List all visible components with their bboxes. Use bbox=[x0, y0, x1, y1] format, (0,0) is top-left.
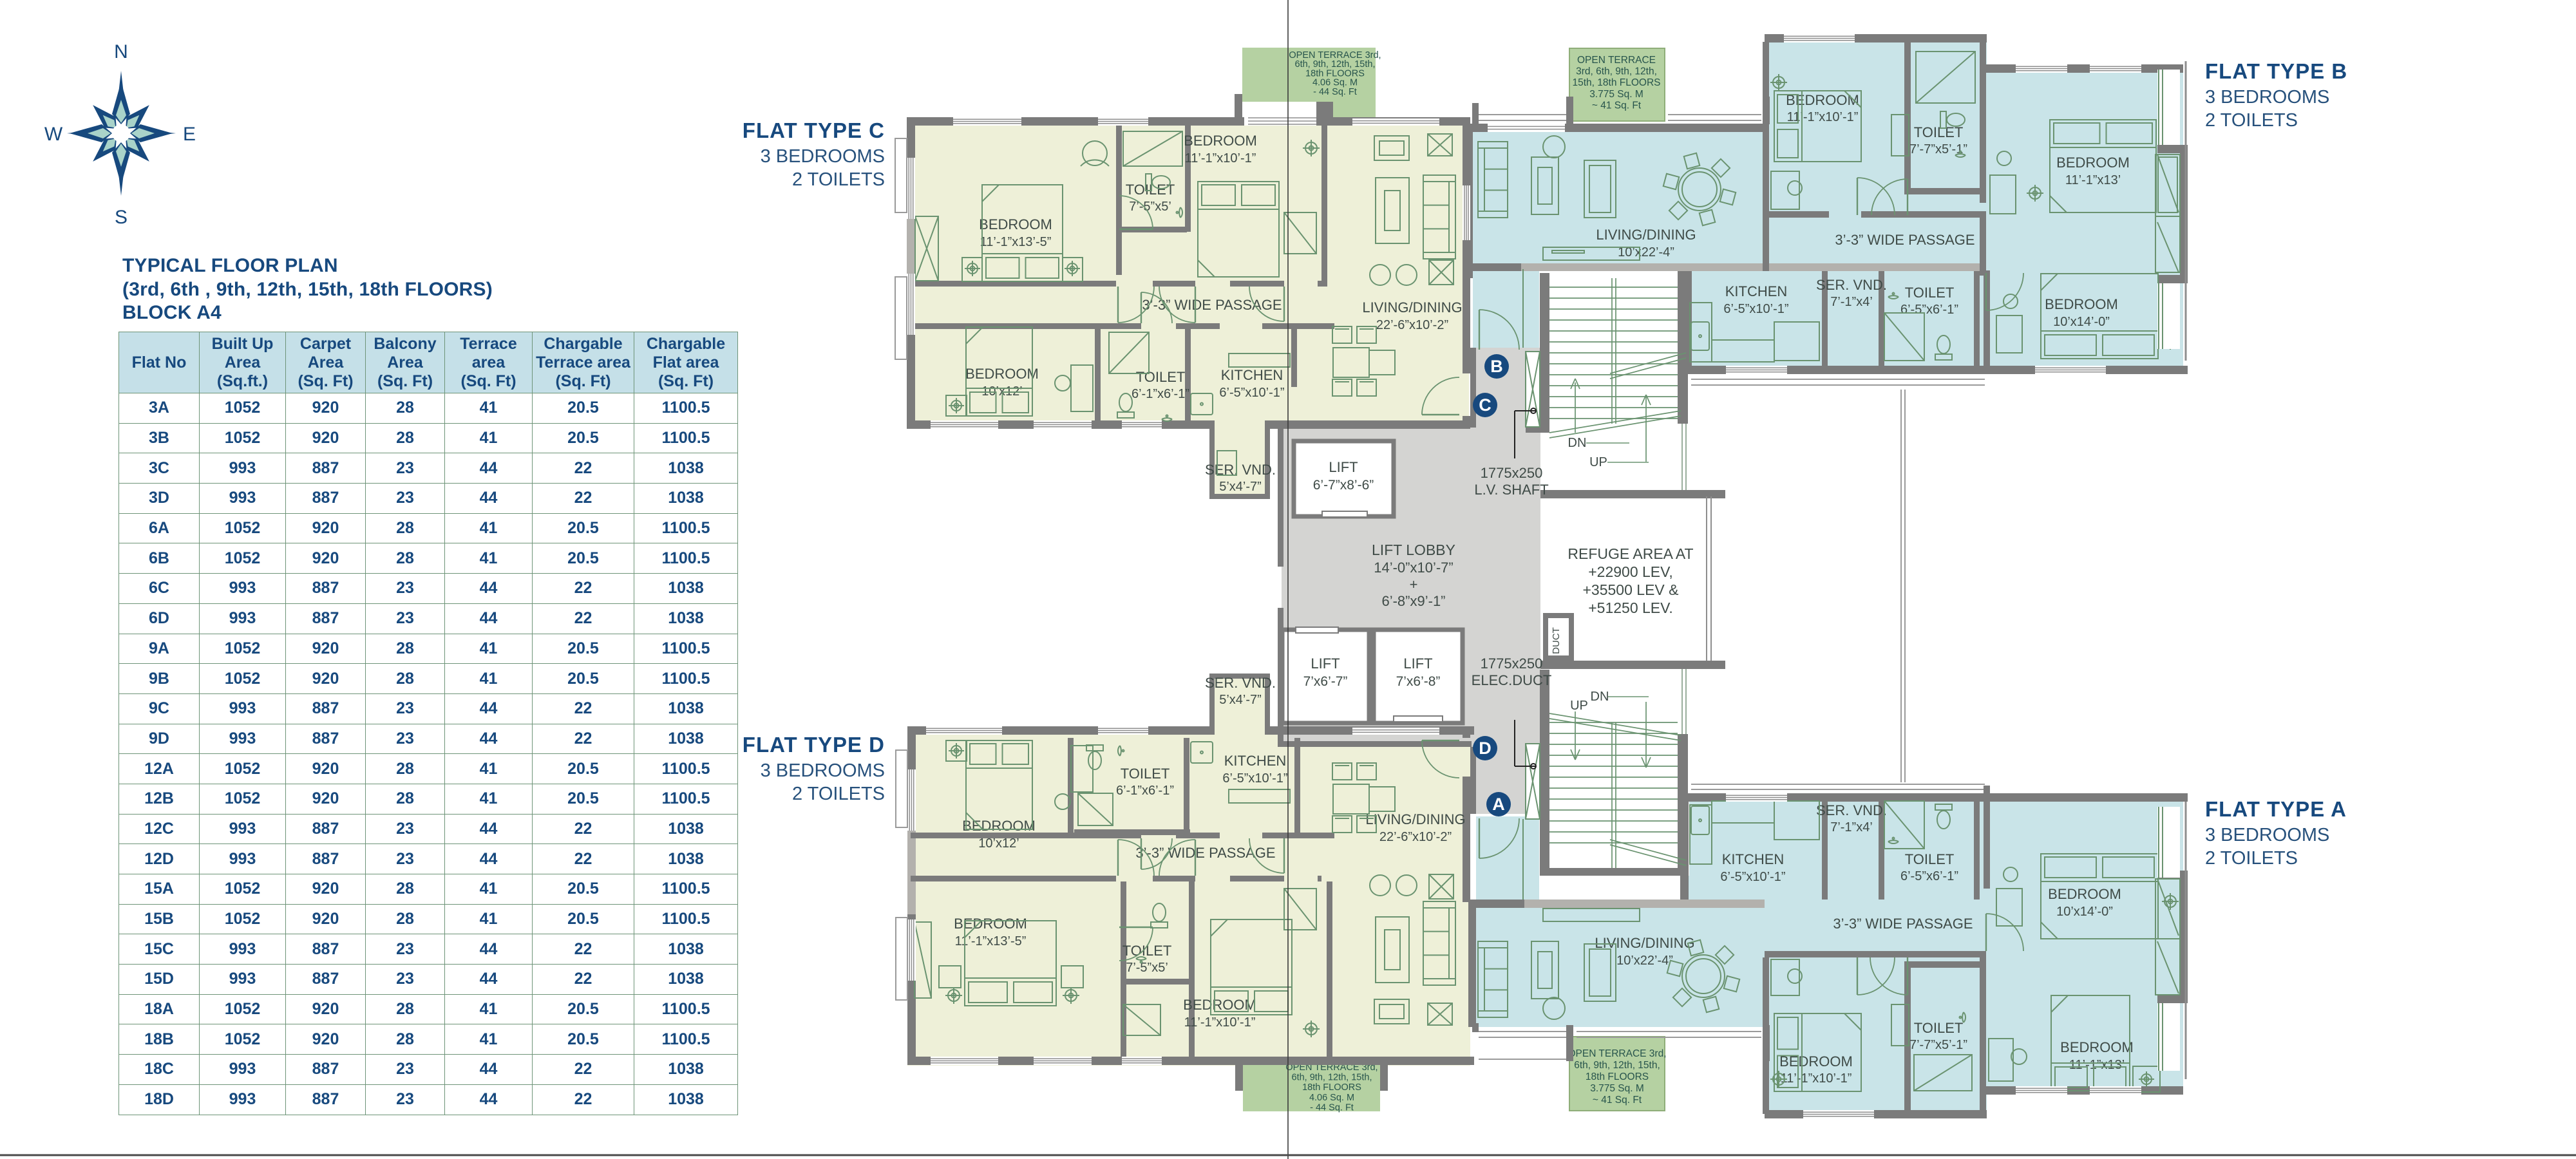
svg-text:3rd, 6th, 9th, 12th,: 3rd, 6th, 9th, 12th, bbox=[1576, 66, 1657, 77]
svg-text:N: N bbox=[114, 41, 128, 62]
svg-text:3’-3” WIDE PASSAGE: 3’-3” WIDE PASSAGE bbox=[1142, 297, 1282, 313]
svg-text:LIVING/DINING: LIVING/DINING bbox=[1596, 227, 1696, 243]
svg-text:TOILET: TOILET bbox=[1121, 766, 1170, 782]
svg-text:BEDROOM: BEDROOM bbox=[2056, 155, 2130, 171]
svg-text:REFUGE AREA AT: REFUGE AREA AT bbox=[1567, 545, 1693, 562]
svg-text:SER. VND.: SER. VND. bbox=[1816, 802, 1887, 818]
svg-text:11’-1”x10’-1”: 11’-1”x10’-1” bbox=[1781, 1071, 1852, 1086]
svg-text:ELEC.DUCT: ELEC.DUCT bbox=[1472, 672, 1552, 688]
svg-text:KITCHEN: KITCHEN bbox=[1725, 283, 1788, 299]
svg-text:6’-5”x10’-1”: 6’-5”x10’-1” bbox=[1222, 771, 1287, 786]
svg-text:DN: DN bbox=[1591, 690, 1609, 704]
svg-text:- 44 Sq. Ft: - 44 Sq. Ft bbox=[1313, 87, 1357, 97]
svg-text:BEDROOM: BEDROOM bbox=[965, 366, 1039, 382]
svg-text:E: E bbox=[183, 124, 196, 145]
svg-text:5’x4’-7”: 5’x4’-7” bbox=[1219, 480, 1262, 494]
svg-text:UP: UP bbox=[1570, 699, 1588, 713]
svg-text:4.06 Sq. M: 4.06 Sq. M bbox=[1309, 1093, 1354, 1103]
svg-text:SER. VND.: SER. VND. bbox=[1205, 675, 1276, 691]
svg-text:18th FLOORS: 18th FLOORS bbox=[1302, 1082, 1361, 1093]
svg-text:2 TOILETS: 2 TOILETS bbox=[2205, 848, 2298, 869]
svg-text:KITCHEN: KITCHEN bbox=[1221, 367, 1283, 383]
svg-text:L.V. SHAFT: L.V. SHAFT bbox=[1474, 482, 1548, 498]
svg-text:5’x4’-7”: 5’x4’-7” bbox=[1219, 693, 1262, 707]
svg-text:10’x22’-4”: 10’x22’-4” bbox=[1616, 954, 1673, 968]
svg-text:A: A bbox=[1492, 795, 1505, 814]
svg-text:SER. VND.: SER. VND. bbox=[1816, 277, 1887, 293]
svg-text:+51250 LEV.: +51250 LEV. bbox=[1588, 599, 1673, 616]
svg-text:6’-5”x6’-1”: 6’-5”x6’-1” bbox=[1900, 303, 1958, 317]
svg-text:TOILET: TOILET bbox=[1914, 1020, 1964, 1036]
svg-text:~ 41 Sq. Ft: ~ 41 Sq. Ft bbox=[1592, 100, 1642, 111]
svg-text:3 BEDROOMS: 3 BEDROOMS bbox=[761, 146, 885, 167]
svg-text:10’x14’-0”: 10’x14’-0” bbox=[2053, 315, 2110, 329]
svg-text:6’-1”x6’-1”: 6’-1”x6’-1” bbox=[1132, 387, 1189, 401]
svg-text:11’-1”x13’: 11’-1”x13’ bbox=[2069, 1058, 2125, 1072]
svg-text:FLAT TYPE D: FLAT TYPE D bbox=[743, 733, 885, 757]
svg-text:3 BEDROOMS: 3 BEDROOMS bbox=[2205, 87, 2329, 108]
svg-text:7’x6’-8”: 7’x6’-8” bbox=[1396, 674, 1441, 689]
svg-text:2 TOILETS: 2 TOILETS bbox=[792, 169, 885, 190]
svg-text:10’x12’: 10’x12’ bbox=[978, 836, 1019, 851]
svg-text:FLAT TYPE A: FLAT TYPE A bbox=[2205, 797, 2347, 821]
svg-text:3’-3” WIDE PASSAGE: 3’-3” WIDE PASSAGE bbox=[1833, 916, 1973, 932]
svg-text:B: B bbox=[1490, 357, 1503, 376]
svg-text:S: S bbox=[115, 207, 128, 228]
svg-text:6’-5”x10’-1”: 6’-5”x10’-1” bbox=[1219, 386, 1284, 400]
svg-text:6’-1”x6’-1”: 6’-1”x6’-1” bbox=[1116, 784, 1174, 798]
svg-text:W: W bbox=[44, 124, 63, 145]
svg-text:DUCT: DUCT bbox=[1551, 627, 1562, 654]
svg-text:3 BEDROOMS: 3 BEDROOMS bbox=[761, 760, 885, 781]
svg-text:- 44 Sq. Ft: - 44 Sq. Ft bbox=[1310, 1102, 1354, 1113]
svg-text:UP: UP bbox=[1589, 455, 1607, 469]
svg-text:11’-1”x10’-1”: 11’-1”x10’-1” bbox=[1184, 1015, 1256, 1030]
svg-text:14’-0”x10’-7”: 14’-0”x10’-7” bbox=[1374, 560, 1454, 576]
svg-text:BEDROOM: BEDROOM bbox=[1184, 133, 1257, 149]
svg-text:6’-5”x6’-1”: 6’-5”x6’-1” bbox=[1900, 869, 1958, 883]
svg-text:6th, 9th, 12th, 15th,: 6th, 9th, 12th, 15th, bbox=[1574, 1060, 1660, 1071]
svg-text:2 TOILETS: 2 TOILETS bbox=[2205, 110, 2298, 131]
svg-text:FLAT TYPE C: FLAT TYPE C bbox=[743, 118, 885, 142]
svg-text:+: + bbox=[1410, 576, 1418, 592]
svg-text:TOILET: TOILET bbox=[1122, 943, 1172, 959]
svg-text:LIFT: LIFT bbox=[1311, 655, 1340, 672]
svg-text:22’-6”x10’-2”: 22’-6”x10’-2” bbox=[1379, 830, 1452, 844]
svg-text:TOILET: TOILET bbox=[1905, 285, 1955, 301]
svg-text:6’-5”x10’-1”: 6’-5”x10’-1” bbox=[1720, 870, 1785, 884]
svg-text:C: C bbox=[1479, 395, 1492, 415]
svg-text:LIFT LOBBY: LIFT LOBBY bbox=[1372, 542, 1455, 558]
svg-text:BEDROOM: BEDROOM bbox=[979, 216, 1052, 232]
svg-text:15th, 18th FLOORS: 15th, 18th FLOORS bbox=[1573, 77, 1661, 88]
svg-text:OPEN TERRACE: OPEN TERRACE bbox=[1577, 55, 1656, 66]
svg-text:6’-8”x9’-1”: 6’-8”x9’-1” bbox=[1381, 593, 1445, 609]
svg-text:KITCHEN: KITCHEN bbox=[1224, 753, 1287, 769]
svg-text:LIFT: LIFT bbox=[1403, 655, 1432, 672]
svg-text:7’-5”x5’: 7’-5”x5’ bbox=[1129, 200, 1171, 214]
svg-text:BEDROOM: BEDROOM bbox=[2048, 886, 2121, 902]
svg-text:+35500 LEV &: +35500 LEV & bbox=[1583, 581, 1679, 598]
svg-text:TOILET: TOILET bbox=[1905, 851, 1955, 867]
svg-text:1775x250: 1775x250 bbox=[1481, 465, 1543, 481]
svg-text:D: D bbox=[1479, 739, 1492, 758]
svg-text:7’x6’-7”: 7’x6’-7” bbox=[1303, 674, 1348, 689]
svg-text:6’-7”x8’-6”: 6’-7”x8’-6” bbox=[1313, 478, 1374, 493]
svg-text:3’-3” WIDE PASSAGE: 3’-3” WIDE PASSAGE bbox=[1835, 232, 1975, 248]
svg-text:3.775 Sq. M: 3.775 Sq. M bbox=[1590, 1083, 1644, 1094]
svg-text:LIFT: LIFT bbox=[1329, 459, 1358, 475]
svg-text:6’-5”x10’-1”: 6’-5”x10’-1” bbox=[1723, 302, 1788, 316]
svg-text:LIVING/DINING: LIVING/DINING bbox=[1365, 811, 1465, 827]
svg-text:11’-1”x10’-1”: 11’-1”x10’-1” bbox=[1185, 151, 1256, 165]
svg-text:6th, 9th, 12th, 15th,: 6th, 9th, 12th, 15th, bbox=[1292, 1073, 1372, 1083]
svg-text:11’-1”x13’-5”: 11’-1”x13’-5” bbox=[980, 235, 1052, 249]
svg-text:7’-1”x4’: 7’-1”x4’ bbox=[1830, 295, 1873, 309]
svg-text:7’-5”x5’: 7’-5”x5’ bbox=[1126, 961, 1168, 975]
svg-text:BEDROOM: BEDROOM bbox=[2045, 296, 2118, 312]
svg-text:2 TOILETS: 2 TOILETS bbox=[792, 784, 885, 804]
svg-text:3.775 Sq. M: 3.775 Sq. M bbox=[1589, 89, 1643, 100]
svg-text:11’-1”x13’: 11’-1”x13’ bbox=[2065, 173, 2121, 187]
svg-text:1775x250: 1775x250 bbox=[1481, 655, 1543, 672]
svg-text:3 BEDROOMS: 3 BEDROOMS bbox=[2205, 825, 2329, 845]
svg-text:DN: DN bbox=[1568, 436, 1587, 450]
svg-text:7’-1”x4’: 7’-1”x4’ bbox=[1830, 820, 1873, 834]
svg-text:BEDROOM: BEDROOM bbox=[1183, 997, 1256, 1013]
svg-text:7’-7”x5’-1”: 7’-7”x5’-1” bbox=[1909, 1038, 1967, 1052]
svg-text:OPEN TERRACE 3rd,: OPEN TERRACE 3rd, bbox=[1567, 1048, 1666, 1059]
svg-text:~ 41 Sq. Ft: ~ 41 Sq. Ft bbox=[1593, 1095, 1642, 1106]
svg-text:TOILET: TOILET bbox=[1136, 369, 1186, 385]
svg-text:BEDROOM: BEDROOM bbox=[2060, 1039, 2134, 1055]
svg-text:LIVING/DINING: LIVING/DINING bbox=[1362, 299, 1462, 316]
svg-text:TOILET: TOILET bbox=[1126, 182, 1175, 198]
svg-text:SER. VND.: SER. VND. bbox=[1205, 462, 1276, 478]
svg-text:KITCHEN: KITCHEN bbox=[1722, 851, 1785, 867]
svg-text:3’-3” WIDE PASSAGE: 3’-3” WIDE PASSAGE bbox=[1135, 845, 1275, 861]
svg-text:10’x14’-0”: 10’x14’-0” bbox=[2056, 905, 2113, 919]
svg-text:18th FLOORS: 18th FLOORS bbox=[1586, 1071, 1649, 1082]
svg-text:FLAT TYPE B: FLAT TYPE B bbox=[2205, 59, 2347, 83]
svg-text:22’-6”x10’-2”: 22’-6”x10’-2” bbox=[1376, 318, 1448, 332]
svg-text:+22900 LEV,: +22900 LEV, bbox=[1588, 563, 1673, 580]
